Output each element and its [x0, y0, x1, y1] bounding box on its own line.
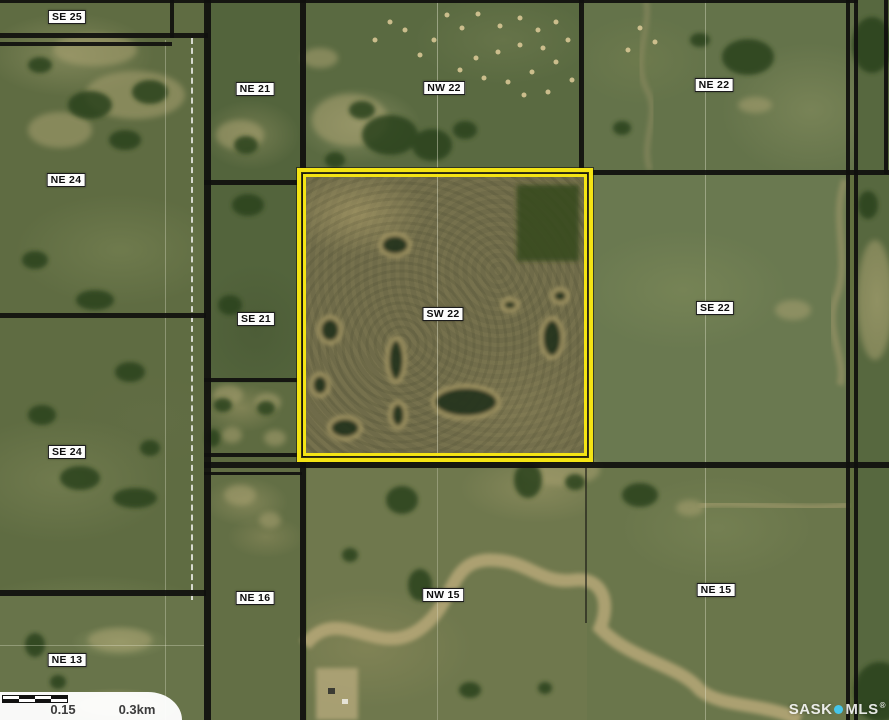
parcel-label-se25: SE 25 — [48, 10, 86, 24]
parcel-label-ne16: NE 16 — [236, 591, 275, 605]
parcel-label-nw15: NW 15 — [422, 588, 464, 602]
boundary-nw15-ne15 — [585, 468, 587, 623]
mls-dot-icon — [834, 705, 843, 714]
scale-bar-panel: 0.15 0.3km — [0, 692, 182, 720]
watermark-sask-text: SASK — [789, 701, 833, 718]
road-vertical-left — [204, 0, 211, 720]
road-vertical-right-west-rail — [846, 0, 850, 720]
parcel-label-se21: SE 21 — [237, 312, 275, 326]
boundary-ne16-north — [204, 472, 302, 475]
parcel-label-se22: SE 22 — [696, 301, 734, 315]
scale-end-label: 0.3km — [119, 702, 156, 717]
boundary-ne24-north — [0, 42, 172, 46]
boundary-se24-ne13 — [0, 590, 206, 596]
parcel-label-sw22: SW 22 — [422, 307, 463, 321]
quarter-line — [705, 0, 706, 720]
boundary-top — [0, 0, 858, 3]
watermark-mls-text: MLS — [845, 701, 878, 718]
parcel-label-ne22: NE 22 — [695, 78, 734, 92]
parcel-label-se24: SE 24 — [48, 445, 86, 459]
quarter-line — [165, 40, 166, 720]
trail-line — [0, 645, 204, 646]
road-vertical-right-east-rail — [854, 0, 858, 720]
boundary-right-edge — [884, 0, 888, 174]
parcel-label-ne13: NE 13 — [48, 653, 87, 667]
scale-mid-label: 0.15 — [50, 702, 75, 717]
boundary-ne21-se21 — [204, 180, 303, 185]
boundary-ne22-se22 — [579, 170, 889, 175]
sask-mls-watermark: SASK MLS ® — [789, 701, 886, 718]
boundary-se25-south — [0, 33, 208, 38]
parcel-label-ne21: NE 21 — [236, 82, 275, 96]
road-horizontal-main — [204, 462, 889, 468]
boundary-ne24-se24 — [0, 313, 206, 318]
boundary-smallparcel-south — [204, 453, 302, 457]
parcel-label-nw22: NW 22 — [423, 81, 465, 95]
aerial-map-image: SE 25 NE 21 NW 22 NE 22 NE 24 SE 21 SW 2… — [0, 0, 889, 720]
parcel-label-ne15: NE 15 — [697, 583, 736, 597]
boundary-se21-south — [204, 378, 303, 382]
registered-mark: ® — [880, 701, 886, 710]
dashed-boundary-line — [191, 38, 193, 600]
boundary-nw22-ne22 — [579, 0, 584, 174]
parcel-label-ne24: NE 24 — [47, 173, 86, 187]
